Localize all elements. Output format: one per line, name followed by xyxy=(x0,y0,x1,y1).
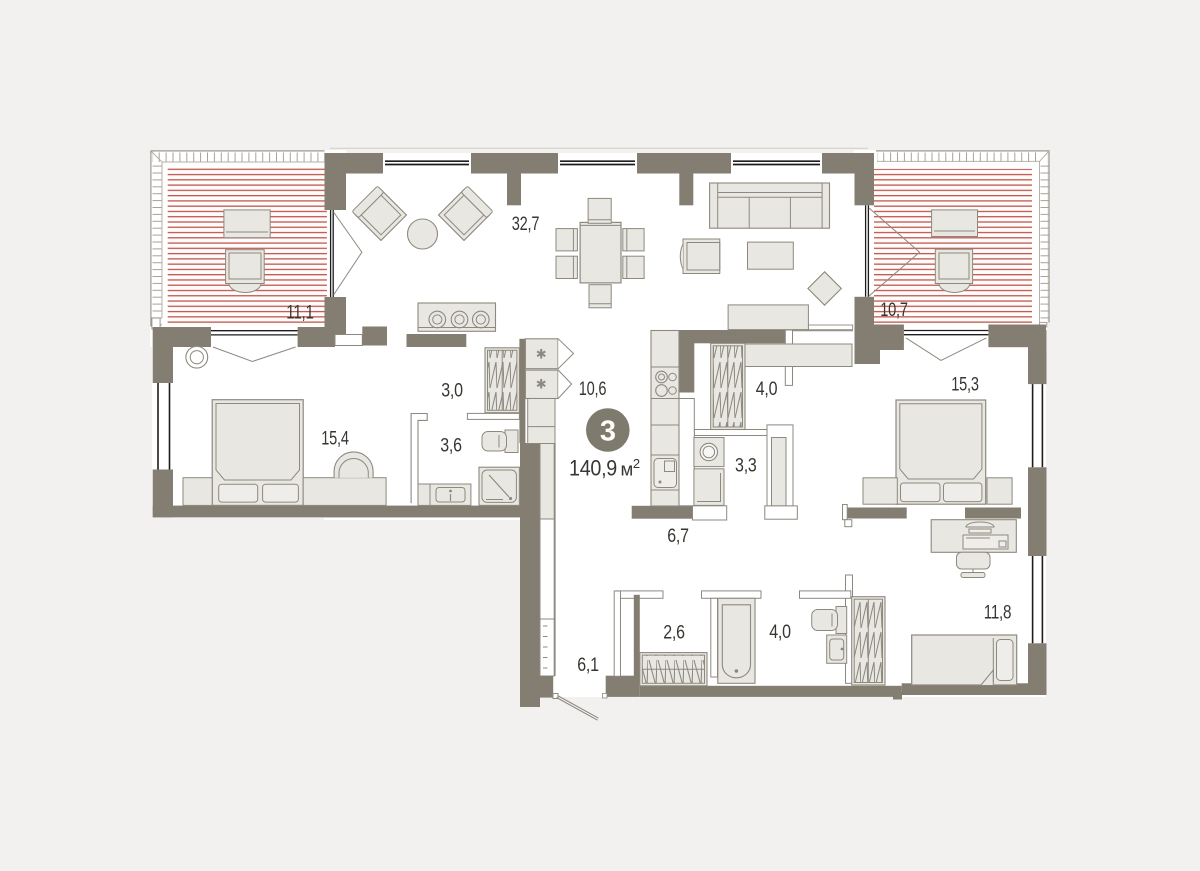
svg-text:15,4: 15,4 xyxy=(321,428,349,450)
svg-text:32,7: 32,7 xyxy=(512,213,540,235)
svg-text:11,1: 11,1 xyxy=(286,302,314,324)
svg-text:11,8: 11,8 xyxy=(984,602,1012,624)
svg-text:6,1: 6,1 xyxy=(577,654,599,676)
svg-text:6,7: 6,7 xyxy=(667,525,689,547)
svg-text:✱: ✱ xyxy=(536,377,547,392)
svg-text:10,7: 10,7 xyxy=(880,299,908,321)
svg-text:3: 3 xyxy=(600,416,616,448)
svg-text:4,0: 4,0 xyxy=(769,621,791,643)
svg-text:3,6: 3,6 xyxy=(440,435,462,457)
svg-text:4,0: 4,0 xyxy=(756,378,778,400)
svg-text:10,6: 10,6 xyxy=(579,378,607,400)
svg-text:2,6: 2,6 xyxy=(663,622,685,644)
svg-text:15,3: 15,3 xyxy=(951,374,979,396)
svg-text:140,9м2: 140,9м2 xyxy=(569,456,640,481)
svg-text:✱: ✱ xyxy=(536,347,547,362)
svg-text:3,0: 3,0 xyxy=(441,380,463,402)
svg-text:3,3: 3,3 xyxy=(735,455,757,477)
